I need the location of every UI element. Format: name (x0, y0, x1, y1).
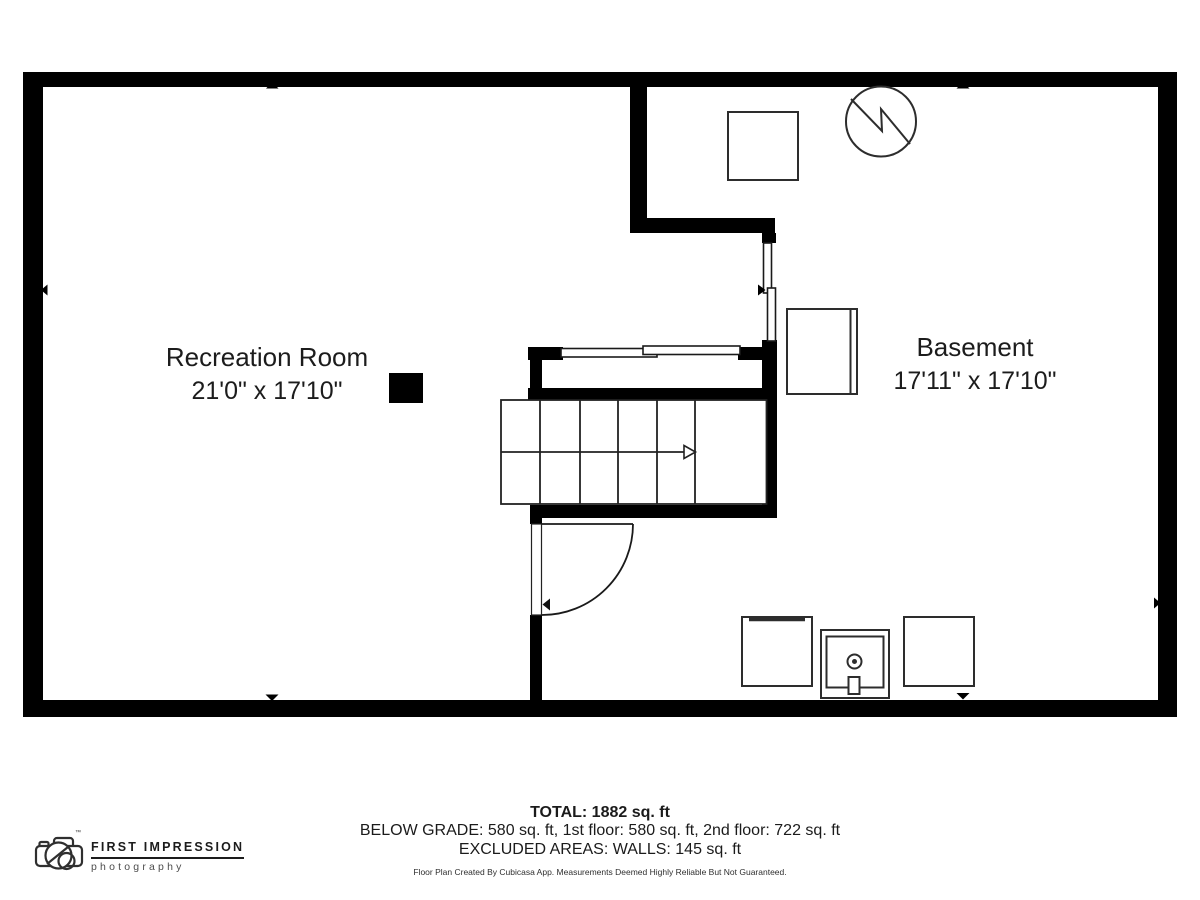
wall-top-middle-vertical (630, 87, 647, 233)
wall-above-stairs (528, 388, 765, 400)
company-name: FIRST IMPRESSION (91, 840, 244, 859)
door-direction-marker-icon (543, 599, 551, 611)
window-icon (768, 288, 776, 341)
windows (561, 243, 776, 357)
wall-bottom (23, 700, 1177, 717)
logo-text: FIRST IMPRESSION photography (91, 838, 244, 873)
room-dimensions: 17'11" x 17'10" (795, 364, 1155, 398)
dryer-icon (904, 617, 974, 686)
wall-below-stairs (530, 505, 777, 518)
laundry-sink-icon (821, 630, 889, 698)
wall-direction-marker-icon (957, 693, 970, 700)
trademark-symbol: ™ (75, 830, 81, 836)
wall-window-jamb (762, 233, 776, 243)
window-icon (643, 346, 740, 355)
wall-band-pier-right (738, 347, 765, 360)
staircase (501, 400, 767, 504)
wall-top-middle-horizontal (630, 218, 775, 233)
total-area: TOTAL: 1882 sq. ft (0, 804, 1200, 822)
wall-door-stub-bottom (530, 615, 542, 700)
room-name: Basement (795, 330, 1155, 364)
wall-right (1158, 72, 1177, 717)
room-name: Recreation Room (87, 340, 447, 374)
floor-plan-page: Recreation Room 21'0" x 17'10" Basement … (0, 0, 1200, 900)
storage-box-icon (728, 112, 798, 180)
wall-top (23, 72, 1177, 87)
door (532, 524, 634, 615)
door-jamb (532, 524, 542, 615)
company-tagline: photography (91, 861, 244, 873)
room-label-recreation-room: Recreation Room 21'0" x 17'10" (87, 340, 447, 408)
wall-door-stub-top (530, 518, 542, 524)
door-swing-icon (542, 524, 633, 615)
washer-icon (742, 617, 812, 686)
room-label-basement: Basement 17'11" x 17'10" (795, 330, 1155, 398)
water-heater-icon (846, 87, 916, 157)
window-icon (764, 243, 772, 293)
camera-icon (33, 833, 89, 875)
room-dimensions: 21'0" x 17'10" (87, 374, 447, 408)
wall-left (23, 72, 43, 717)
